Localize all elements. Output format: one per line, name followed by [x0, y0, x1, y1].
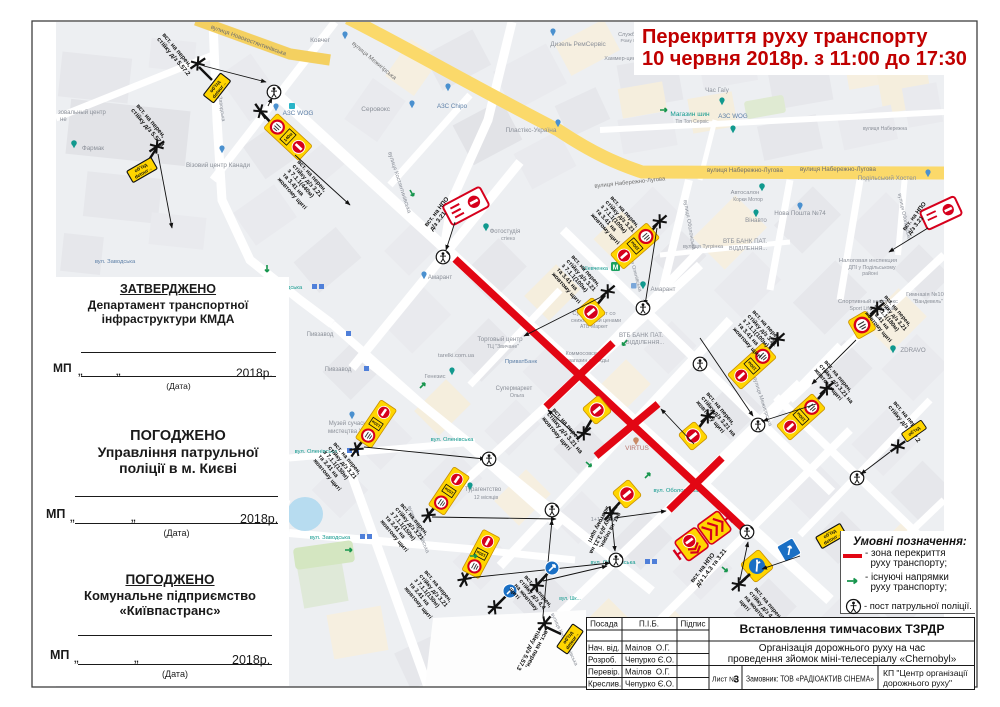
- svg-text:Ковчег: Ковчег: [310, 37, 331, 44]
- svg-text:tarelki.com.ua: tarelki.com.ua: [438, 353, 475, 359]
- svg-text:вулиця Набережно-Лугова: вулиця Набережно-Лугова: [800, 166, 876, 173]
- svg-text:Посада: Посада: [590, 620, 618, 629]
- svg-text:Корки Мотор: Корки Мотор: [733, 197, 763, 203]
- svg-text:M: M: [613, 265, 619, 272]
- svg-text:КП "Центр організації: КП "Центр організації: [883, 668, 968, 678]
- svg-text:Автосалон: Автосалон: [731, 190, 760, 196]
- svg-text:проведення зйомок міні-телесер: проведення зйомок міні-телесеріалу «Cher…: [728, 654, 957, 665]
- svg-text:Фармак: Фармак: [82, 145, 104, 152]
- svg-text:Амарант: Амарант: [428, 275, 452, 281]
- svg-text:зовальный центр: зовальный центр: [58, 109, 107, 116]
- svg-text:вул. Шк...: вул. Шк...: [559, 596, 581, 602]
- svg-text:Серовокс: Серовокс: [361, 106, 390, 113]
- svg-text:Пивзавод: Пивзавод: [307, 332, 334, 338]
- svg-text:Візовий центр Канади: Візовий центр Канади: [186, 161, 251, 169]
- svg-text:Організація дорожнього руху на: Організація дорожнього руху на час: [759, 643, 925, 654]
- svg-text:вулиця Тугрінка: вулиця Тугрінка: [683, 244, 724, 250]
- svg-text:АЗС Chipo: АЗС Chipo: [437, 103, 468, 110]
- svg-text:АЗС WOG: АЗС WOG: [283, 110, 314, 117]
- svg-text:Перевір.: Перевір.: [588, 668, 620, 677]
- svg-text:Фотостудія: Фотостудія: [490, 229, 520, 235]
- svg-text:Креслив.: Креслив.: [588, 680, 621, 689]
- svg-text:вул. Оленівська: вул. Оленівська: [431, 437, 474, 443]
- svg-text:П.І.Б.: П.І.Б.: [639, 620, 659, 629]
- svg-text:Вінавто: Вінавто: [745, 217, 767, 224]
- svg-text:Нова Пошта №74: Нова Пошта №74: [774, 210, 826, 217]
- svg-text:вул. Заводська: вул. Заводська: [310, 535, 351, 541]
- svg-text:не: не: [60, 117, 67, 123]
- svg-text:ВТБ БАНК ПАТ.: ВТБ БАНК ПАТ.: [723, 238, 767, 245]
- svg-text:Встановлення тимчасових ТЗРДР: Встановлення тимчасових ТЗРДР: [740, 622, 945, 636]
- svg-text:вулиця Набережна: вулиця Набережна: [863, 126, 907, 132]
- svg-text:ПриватБанк: ПриватБанк: [505, 359, 538, 365]
- svg-text:Підпис: Підпис: [681, 620, 706, 629]
- svg-text:Час Гаїу: Час Гаїу: [705, 87, 730, 94]
- svg-text:ВІДДІЛЕННЯ...: ВІДДІЛЕННЯ...: [626, 340, 664, 346]
- svg-text:ВТБ БАНК ПАТ.: ВТБ БАНК ПАТ.: [619, 332, 663, 339]
- svg-text:Подільський Хостел: Подільський Хостел: [858, 174, 917, 182]
- svg-text:АЗС WOG: АЗС WOG: [718, 113, 748, 120]
- svg-text:Магазин шин: Магазин шин: [670, 111, 710, 118]
- svg-text:Нач. від.: Нач. від.: [588, 644, 620, 653]
- svg-text:Пивзавод: Пивзавод: [325, 367, 352, 373]
- svg-text:Пластікс-Україна: Пластікс-Україна: [505, 126, 556, 134]
- svg-text:Чепурко Є.О.: Чепурко Є.О.: [625, 656, 674, 665]
- svg-text:Дизель РемСервіс: Дизель РемСервіс: [550, 40, 606, 48]
- svg-text:вул. Заводська: вул. Заводська: [95, 259, 136, 265]
- svg-text:"Вандевель": "Вандевель": [913, 299, 943, 305]
- svg-text:VIRTUS: VIRTUS: [625, 445, 649, 452]
- svg-text:районі: районі: [862, 270, 878, 277]
- svg-text:Тіп Топ Сервіс: Тіп Топ Сервіс: [675, 119, 709, 125]
- svg-text:ВІДДІЛЕННЯ...: ВІДДІЛЕННЯ...: [729, 246, 767, 252]
- svg-text:Маілов О.Г.: Маілов О.Г.: [625, 644, 670, 653]
- svg-text:Супермаркет: Супермаркет: [496, 386, 533, 392]
- svg-text:АТБ-Маркет: АТБ-Маркет: [580, 324, 609, 330]
- svg-text:Налоговая инспекция: Налоговая инспекция: [839, 258, 897, 264]
- svg-text:Замовник: ТОВ «РАДІОАКТИВ СІНЕ: Замовник: ТОВ «РАДІОАКТИВ СІНЕМА»: [746, 675, 874, 684]
- svg-text:Хаммер-цин: Хаммер-цин: [604, 56, 636, 62]
- svg-text:Амарант: Амарант: [651, 286, 676, 293]
- svg-text:Маілов О.Г.: Маілов О.Г.: [625, 668, 670, 677]
- svg-text:12 місяців: 12 місяців: [474, 495, 498, 501]
- svg-text:Ольга: Ольга: [510, 393, 524, 399]
- svg-text:вулиця Набережно-Лугова: вулиця Набережно-Лугова: [707, 167, 783, 174]
- svg-text:3: 3: [733, 675, 739, 686]
- svg-text:ТЦ "Звичане": ТЦ "Звичане": [487, 344, 519, 350]
- svg-text:стіенз: стіенз: [501, 236, 515, 242]
- svg-text:Чепурко Є.О.: Чепурко Є.О.: [625, 680, 674, 689]
- svg-text:Торговый центр: Торговый центр: [477, 336, 523, 343]
- svg-text:Генезис: Генезис: [424, 374, 445, 380]
- svg-text:дорожнього руху": дорожнього руху": [883, 678, 952, 688]
- svg-text:Розроб.: Розроб.: [588, 656, 617, 665]
- svg-text:Гимназія №10: Гимназія №10: [906, 292, 944, 298]
- svg-text:ZDRAVO: ZDRAVO: [900, 347, 926, 354]
